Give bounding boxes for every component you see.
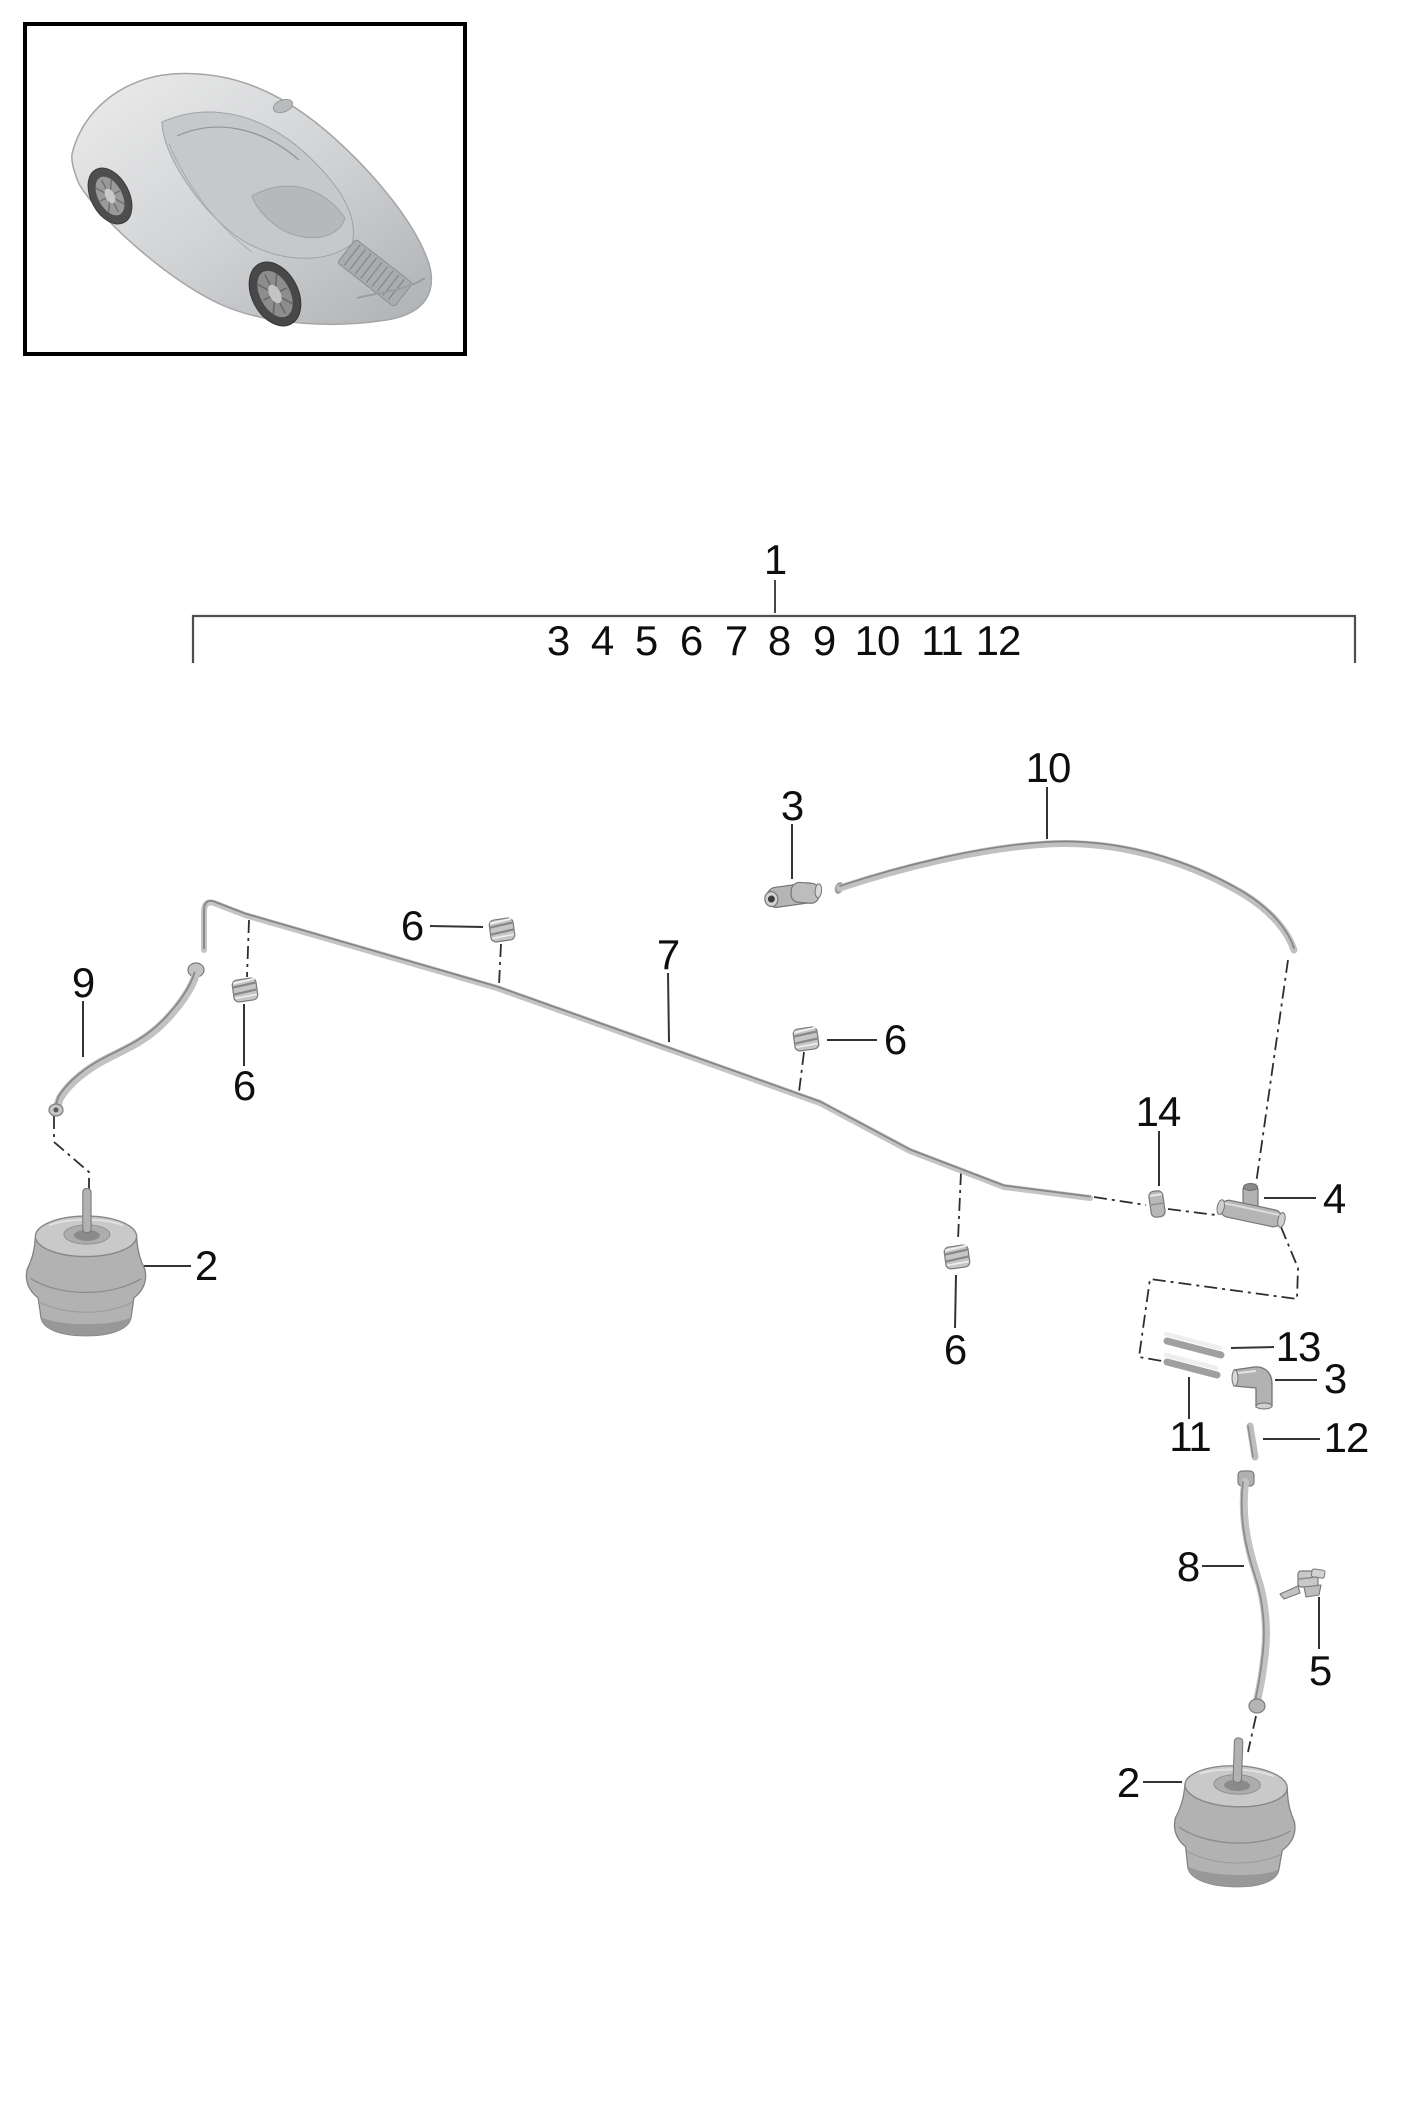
bracket-number-3: 3 xyxy=(547,620,569,662)
tee-connector-4 xyxy=(1216,1184,1287,1229)
part-callout-10[interactable]: 10 xyxy=(1026,747,1071,789)
part-callout-6[interactable]: 6 xyxy=(944,1329,966,1371)
hose-11 xyxy=(1166,1355,1217,1375)
bracket-number-11: 11 xyxy=(921,620,963,662)
part-callout-12[interactable]: 12 xyxy=(1324,1417,1369,1459)
hose-13 xyxy=(1166,1334,1221,1355)
vacuum-line-7 xyxy=(204,901,1090,1198)
part-callout-7[interactable]: 7 xyxy=(657,934,679,976)
bracket-number-12: 12 xyxy=(976,620,1021,662)
label-leader-lines xyxy=(83,787,1320,1782)
engine-mount-left xyxy=(26,1188,145,1335)
elbow-connector-3-lower xyxy=(1232,1367,1272,1409)
part-callout-5[interactable]: 5 xyxy=(1309,1650,1331,1692)
part-callout-6[interactable]: 6 xyxy=(401,905,423,947)
part-callout-6[interactable]: 6 xyxy=(884,1019,906,1061)
part-callout-8[interactable]: 8 xyxy=(1177,1546,1199,1588)
bracket-number-4: 4 xyxy=(591,620,613,662)
vent-hose-8 xyxy=(1238,1471,1266,1713)
line-clips-6 xyxy=(232,917,971,1269)
assembly-group-label[interactable]: 1 xyxy=(764,539,786,581)
part-callout-4[interactable]: 4 xyxy=(1323,1178,1345,1220)
bracket-number-5: 5 xyxy=(635,620,657,662)
part-callout-9[interactable]: 9 xyxy=(72,962,94,1004)
part-callout-2[interactable]: 2 xyxy=(195,1245,217,1287)
hose-12 xyxy=(1248,1426,1255,1457)
bracket-number-6: 6 xyxy=(680,620,702,662)
part-callout-11[interactable]: 11 xyxy=(1169,1416,1211,1458)
parts-diagram-page: 1 3456789101112 10367966144213631112852 xyxy=(0,0,1409,2123)
part-callout-3[interactable]: 3 xyxy=(781,785,803,827)
part-callout-13[interactable]: 13 xyxy=(1276,1326,1321,1368)
bracket-number-8: 8 xyxy=(768,620,790,662)
part-callout-6[interactable]: 6 xyxy=(233,1065,255,1107)
bracket-number-7: 7 xyxy=(725,620,747,662)
engine-mount-right xyxy=(1172,1736,1298,1889)
part-callout-2[interactable]: 2 xyxy=(1117,1762,1139,1804)
assembly-guide-lines xyxy=(54,920,1298,1752)
part-callout-14[interactable]: 14 xyxy=(1136,1091,1181,1133)
retainer-clip-5 xyxy=(1280,1569,1325,1599)
bracket-number-10: 10 xyxy=(855,620,900,662)
damper-14 xyxy=(1148,1190,1165,1218)
bracket-number-9: 9 xyxy=(813,620,835,662)
vent-hose-10 xyxy=(833,842,1294,950)
elbow-connector-3-top xyxy=(763,878,825,911)
part-callout-3[interactable]: 3 xyxy=(1324,1358,1346,1400)
